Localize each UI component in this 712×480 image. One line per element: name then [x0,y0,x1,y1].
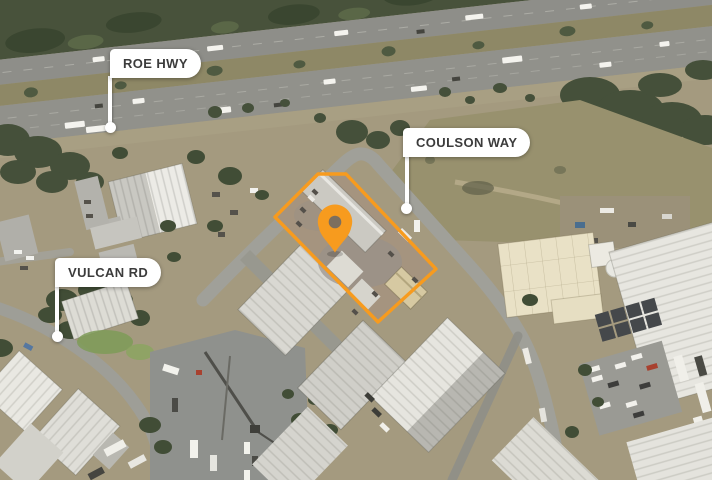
label-bubble: COULSON WAY [403,128,530,157]
road-label-text: VULCAN RD [68,265,148,280]
road-label-text: COULSON WAY [416,135,517,150]
label-stem [55,284,59,332]
location-pin-hole [329,216,342,229]
label-stem [108,76,112,124]
label-dot [401,203,412,214]
road-label-text: ROE HWY [123,56,188,71]
aerial-imagery [0,0,712,480]
label-bubble: VULCAN RD [55,258,161,287]
label-dot [52,331,63,342]
label-stem [405,155,409,205]
label-dot [105,122,116,133]
label-bubble: ROE HWY [110,49,201,78]
map-canvas[interactable]: ROE HWY COULSON WAY VULCAN RD [0,0,712,480]
